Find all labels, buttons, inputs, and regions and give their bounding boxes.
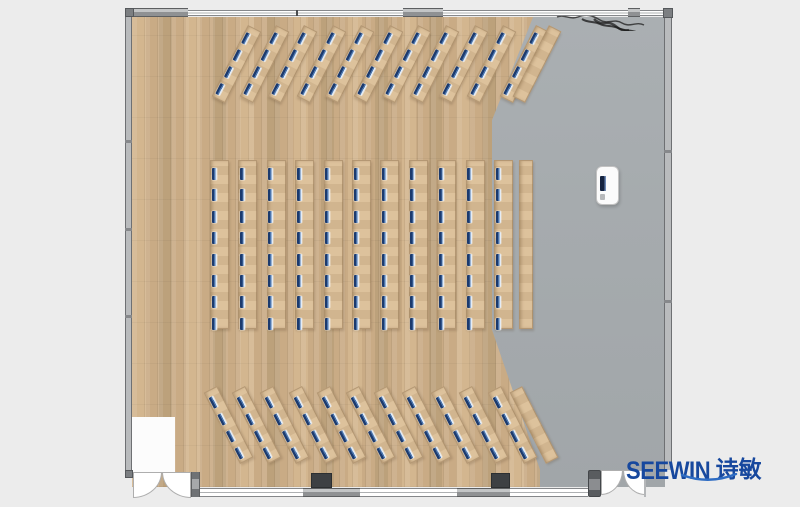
- chair-marker: [262, 447, 272, 460]
- chair-marker: [496, 254, 501, 266]
- chair-marker: [268, 296, 273, 308]
- chair-marker: [439, 254, 444, 266]
- chair-marker: [356, 83, 366, 96]
- chair-marker: [461, 447, 471, 460]
- chair-marker: [382, 232, 387, 244]
- chair-marker: [319, 447, 329, 460]
- chair-marker: [518, 447, 528, 460]
- desk-sections: [0, 0, 800, 507]
- chair-marker: [472, 413, 482, 426]
- chair-marker: [496, 318, 501, 330]
- chair-marker: [496, 32, 506, 45]
- chair-marker: [297, 254, 302, 266]
- chair-marker: [496, 211, 501, 223]
- chair-marker: [268, 189, 273, 201]
- chair-marker: [496, 232, 501, 244]
- chair-marker: [280, 66, 290, 79]
- wall-corner-top-left: [125, 8, 134, 17]
- chair-marker: [439, 275, 444, 287]
- chair-marker: [297, 32, 307, 45]
- chair-marker: [243, 83, 253, 96]
- wall-left-mullion-2: [125, 228, 132, 231]
- chair-marker: [509, 430, 519, 443]
- desk-strip: [295, 160, 314, 329]
- window-bottom-2: [360, 488, 457, 497]
- chair-marker: [236, 396, 246, 409]
- wall-jog-connector: [191, 472, 200, 497]
- chair-marker: [317, 49, 327, 62]
- chair-marker: [439, 318, 444, 330]
- chair-marker: [240, 232, 245, 244]
- desk-strip: [409, 160, 428, 329]
- chair-marker: [387, 413, 397, 426]
- chair-marker: [470, 83, 480, 96]
- chair-marker: [382, 275, 387, 287]
- chair-marker: [443, 413, 453, 426]
- chair-marker: [374, 49, 384, 62]
- chair-marker: [410, 254, 415, 266]
- chair-marker: [406, 396, 416, 409]
- logo-swoosh-icon: [680, 473, 738, 484]
- wall-right-mullion-1: [664, 150, 672, 153]
- chair-marker: [325, 168, 330, 180]
- chair-marker: [439, 32, 449, 45]
- chair-marker: [212, 275, 217, 287]
- chair-marker: [208, 396, 218, 409]
- chair-marker: [467, 32, 477, 45]
- chair-marker: [467, 189, 472, 201]
- chair-marker: [354, 254, 359, 266]
- chair-marker: [330, 413, 340, 426]
- brand-logo: SEEWIN诗敏: [626, 450, 796, 486]
- chair-marker: [435, 396, 445, 409]
- floor-plan-canvas: SEEWIN诗敏: [0, 0, 800, 507]
- chair-marker: [382, 254, 387, 266]
- chair-marker: [393, 66, 403, 79]
- chair-marker: [354, 189, 359, 201]
- chair-marker: [223, 66, 233, 79]
- chair-marker: [481, 430, 491, 443]
- chair-marker: [467, 168, 472, 180]
- desk-strip: [324, 160, 343, 329]
- chair-marker: [385, 83, 395, 96]
- lectern-screen: [600, 176, 606, 191]
- chair-marker: [240, 296, 245, 308]
- wall-corner-bottom-left: [125, 470, 133, 478]
- window-top-2: [443, 10, 628, 16]
- chair-marker: [410, 318, 415, 330]
- desk-strip-plain: [519, 160, 533, 329]
- chair-marker: [395, 430, 405, 443]
- chair-marker: [410, 275, 415, 287]
- window-bottom-1: [200, 488, 303, 497]
- chair-marker: [240, 168, 245, 180]
- chair-marker: [269, 32, 279, 45]
- wall-bottom-solid-2: [457, 488, 510, 497]
- desk-strip: [238, 160, 257, 329]
- chair-marker: [492, 396, 502, 409]
- chair-marker: [528, 32, 538, 45]
- desk-strip: [267, 160, 286, 329]
- chair-marker: [290, 447, 300, 460]
- chair-marker: [511, 66, 521, 79]
- chair-marker: [212, 296, 217, 308]
- chair-marker: [382, 296, 387, 308]
- chair-marker: [297, 275, 302, 287]
- chair-marker: [297, 232, 302, 244]
- wall-left-mullion-1: [125, 140, 132, 143]
- chair-marker: [240, 318, 245, 330]
- chair-marker: [410, 168, 415, 180]
- chair-marker: [410, 189, 415, 201]
- chair-marker: [268, 211, 273, 223]
- chair-marker: [293, 396, 303, 409]
- chair-marker: [251, 66, 261, 79]
- chair-marker: [424, 430, 434, 443]
- chair-marker: [467, 254, 472, 266]
- chair-marker: [350, 396, 360, 409]
- chair-marker: [450, 66, 460, 79]
- chair-marker: [354, 318, 359, 330]
- door-post: [588, 470, 601, 497]
- chair-marker: [432, 447, 442, 460]
- chair-marker: [439, 168, 444, 180]
- chair-marker: [467, 275, 472, 287]
- chair-marker: [496, 275, 501, 287]
- chair-marker: [282, 430, 292, 443]
- chair-marker: [268, 254, 273, 266]
- chair-marker: [234, 447, 244, 460]
- chair-marker: [358, 413, 368, 426]
- chair-marker: [232, 49, 242, 62]
- chair-marker: [240, 189, 245, 201]
- chair-marker: [240, 32, 250, 45]
- chair-marker: [325, 275, 330, 287]
- chair-marker: [271, 83, 281, 96]
- pilaster-1: [311, 473, 332, 488]
- chair-marker: [240, 275, 245, 287]
- desk-strip: [466, 160, 485, 329]
- chair-marker: [310, 430, 320, 443]
- desk-strip: [352, 160, 371, 329]
- chair-marker: [264, 396, 274, 409]
- chair-marker: [260, 49, 270, 62]
- chair-marker: [404, 447, 414, 460]
- chair-marker: [328, 83, 338, 96]
- chair-marker: [212, 189, 217, 201]
- chair-marker: [212, 254, 217, 266]
- chair-marker: [308, 66, 318, 79]
- chair-marker: [382, 318, 387, 330]
- chair-marker: [367, 430, 377, 443]
- chair-marker: [489, 447, 499, 460]
- chair-marker: [299, 83, 309, 96]
- chair-marker: [339, 430, 349, 443]
- wall-top-solid-3: [628, 8, 640, 17]
- chair-marker: [365, 66, 375, 79]
- chair-marker: [411, 32, 421, 45]
- chair-marker: [467, 232, 472, 244]
- chair-marker: [297, 168, 302, 180]
- window-bottom-3: [510, 488, 588, 497]
- chair-marker: [422, 66, 432, 79]
- chair-marker: [297, 318, 302, 330]
- desk-strip: [437, 160, 456, 329]
- wall-right: [664, 18, 672, 470]
- chair-marker: [273, 413, 283, 426]
- chair-marker: [430, 49, 440, 62]
- wall-left-mullion-3: [125, 315, 132, 318]
- chair-marker: [297, 211, 302, 223]
- chair-marker: [337, 66, 347, 79]
- chair-marker: [325, 232, 330, 244]
- chair-marker: [225, 430, 235, 443]
- chair-marker: [452, 430, 462, 443]
- chair-marker: [459, 49, 469, 62]
- desk-strip: [210, 160, 229, 329]
- chair-marker: [212, 232, 217, 244]
- chair-marker: [297, 189, 302, 201]
- chair-marker: [325, 211, 330, 223]
- chair-marker: [354, 211, 359, 223]
- chair-marker: [354, 275, 359, 287]
- chair-marker: [487, 49, 497, 62]
- wall-right-mullion-2: [664, 300, 672, 303]
- lectern-control-pad: [600, 194, 605, 200]
- chair-marker: [245, 413, 255, 426]
- chair-marker: [212, 168, 217, 180]
- chair-marker: [212, 318, 217, 330]
- chair-marker: [268, 232, 273, 244]
- chair-marker: [301, 413, 311, 426]
- chair-marker: [216, 413, 226, 426]
- chair-marker: [496, 296, 501, 308]
- chair-marker: [288, 49, 298, 62]
- wall-top-solid-2: [403, 8, 443, 17]
- chair-marker: [467, 296, 472, 308]
- chair-marker: [321, 396, 331, 409]
- chair-marker: [345, 49, 355, 62]
- window-top-3: [640, 10, 663, 16]
- chair-marker: [439, 211, 444, 223]
- chair-marker: [415, 413, 425, 426]
- chair-marker: [410, 296, 415, 308]
- chair-marker: [439, 296, 444, 308]
- chair-marker: [382, 168, 387, 180]
- chair-marker: [520, 49, 530, 62]
- chair-marker: [325, 318, 330, 330]
- chair-marker: [467, 211, 472, 223]
- chair-marker: [354, 168, 359, 180]
- chair-marker: [410, 232, 415, 244]
- chair-marker: [354, 296, 359, 308]
- chair-marker: [413, 83, 423, 96]
- chair-marker: [347, 447, 357, 460]
- chair-marker: [240, 211, 245, 223]
- chair-marker: [500, 413, 510, 426]
- chair-marker: [240, 254, 245, 266]
- chair-marker: [325, 32, 335, 45]
- chair-marker: [297, 296, 302, 308]
- chair-marker: [402, 49, 412, 62]
- chair-marker: [439, 232, 444, 244]
- chair-marker: [441, 83, 451, 96]
- chair-marker: [354, 32, 364, 45]
- chair-marker: [463, 396, 473, 409]
- chair-marker: [268, 168, 273, 180]
- chair-marker: [325, 296, 330, 308]
- wall-bottom-solid-1: [303, 488, 360, 497]
- chair-marker: [376, 447, 386, 460]
- wall-left: [125, 17, 132, 472]
- chair-marker: [212, 211, 217, 223]
- chair-marker: [496, 189, 501, 201]
- chair-marker: [410, 211, 415, 223]
- wall-top-solid-1: [134, 8, 188, 17]
- chair-marker: [479, 66, 489, 79]
- chair-marker: [378, 396, 388, 409]
- chair-marker: [467, 318, 472, 330]
- desk-strip: [380, 160, 399, 329]
- chair-marker: [382, 189, 387, 201]
- chair-marker: [496, 168, 501, 180]
- window-mullion-mark: [296, 10, 298, 16]
- chair-marker: [214, 83, 224, 96]
- lectern: [596, 166, 619, 205]
- desk-strip: [494, 160, 513, 329]
- wall-corner-top-right: [663, 8, 673, 18]
- chair-marker: [268, 318, 273, 330]
- chair-marker: [502, 83, 512, 96]
- chair-marker: [382, 211, 387, 223]
- chair-marker: [268, 275, 273, 287]
- chair-marker: [325, 189, 330, 201]
- chair-marker: [382, 32, 392, 45]
- chair-marker: [354, 232, 359, 244]
- chair-marker: [325, 254, 330, 266]
- chair-marker: [439, 189, 444, 201]
- chair-marker: [253, 430, 263, 443]
- pilaster-2: [491, 473, 510, 488]
